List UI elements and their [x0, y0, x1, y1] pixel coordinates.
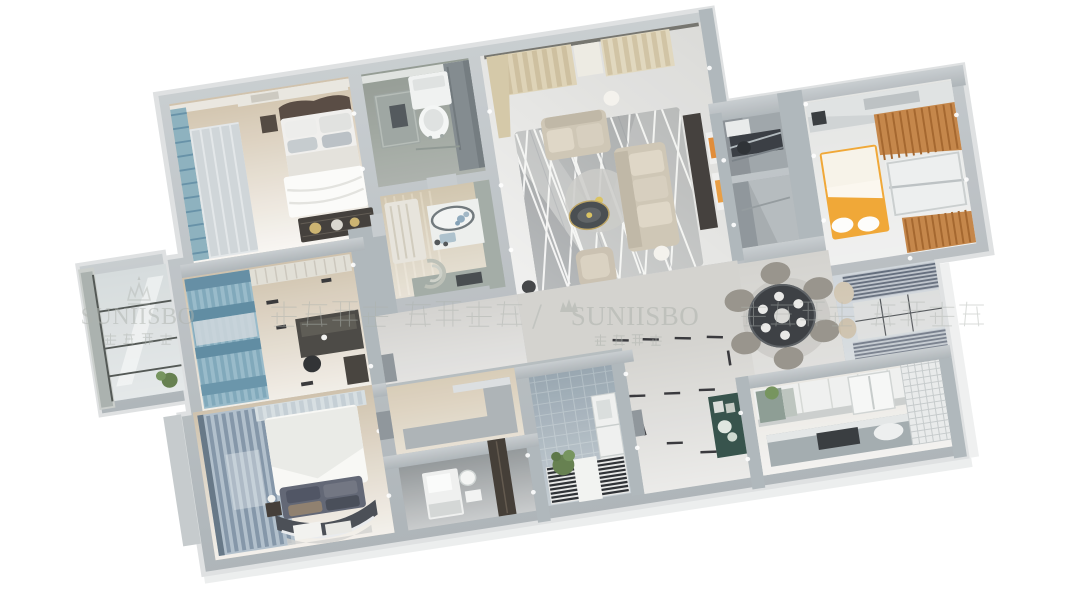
- svg-text:SUNIISBO: SUNIISBO: [571, 301, 700, 331]
- svg-text:/: /: [532, 296, 542, 336]
- svg-text:SUNIISBO: SUNIISBO: [81, 304, 196, 330]
